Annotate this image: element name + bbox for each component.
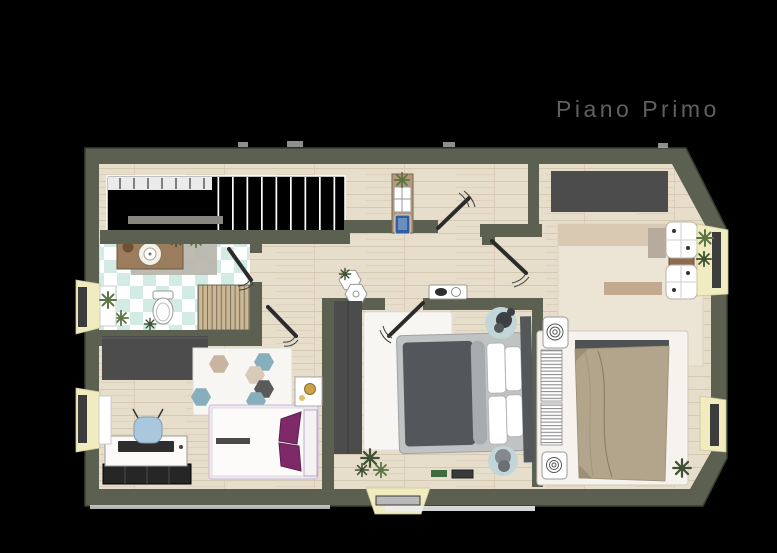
sill-plant-icon	[100, 292, 116, 308]
nightstand	[295, 377, 322, 406]
tan-duvet	[575, 346, 669, 481]
headboard	[304, 410, 317, 476]
wardrobe-left	[102, 336, 208, 380]
hex-plant-icon	[339, 268, 350, 279]
desk-plant-icon	[395, 173, 409, 187]
pillow	[487, 343, 506, 393]
stair-upper-flight	[108, 177, 212, 190]
floorplan-page: Piano Primo	[0, 0, 777, 553]
dressing-set	[666, 222, 697, 299]
bay-plant2-icon	[697, 252, 711, 266]
stair-railing	[128, 216, 223, 224]
toilet	[153, 291, 173, 324]
slat-panel	[541, 403, 562, 445]
bathroom-plant2-icon	[144, 318, 155, 329]
round-mat-bottom	[488, 446, 518, 476]
side-table-top	[543, 317, 568, 348]
laptop	[216, 438, 250, 444]
pillow	[506, 395, 523, 437]
bedroom-middle	[334, 301, 535, 478]
wardrobe-right	[551, 171, 668, 212]
round-mat-top	[485, 307, 517, 339]
bench	[452, 470, 473, 478]
dark-duvet	[403, 341, 476, 447]
window-bay-right-top	[697, 224, 728, 296]
double-bed	[396, 316, 535, 465]
window-bay-left-top	[76, 280, 116, 334]
shower-slats	[198, 285, 250, 330]
floorplan-svg	[0, 0, 777, 553]
pillow	[505, 347, 522, 391]
side-table-bottom	[542, 452, 567, 479]
single-bed	[209, 405, 318, 479]
console-table	[429, 285, 467, 299]
planter-tray	[431, 470, 447, 477]
hall-desk	[392, 173, 413, 234]
window-bay-left-bottom	[76, 388, 111, 452]
corner-plant-icon	[673, 459, 691, 477]
slat-panel	[541, 350, 562, 401]
staircase	[107, 176, 345, 233]
window-bay-right-bottom	[700, 396, 726, 452]
stair-treads	[212, 177, 344, 232]
pillow	[488, 396, 507, 444]
bay-plant-icon	[697, 230, 713, 246]
